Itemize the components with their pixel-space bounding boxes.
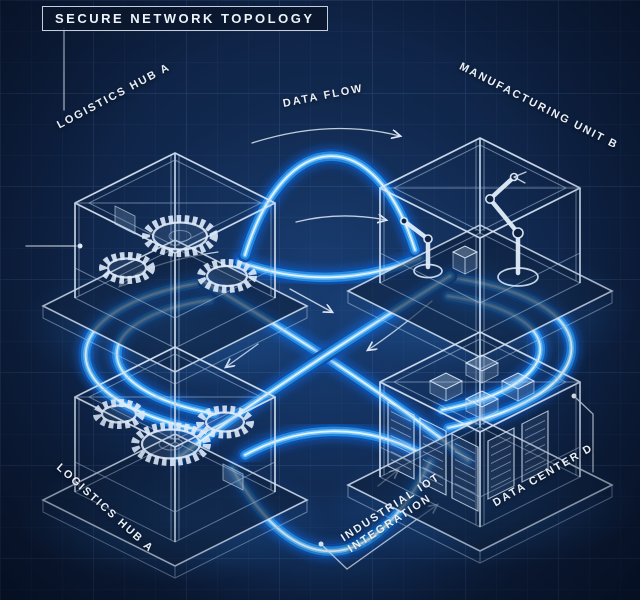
left-marker-dot — [78, 244, 83, 249]
page-title: SECURE NETWORK TOPOLOGY — [55, 11, 315, 26]
blueprint-canvas: SECURE NETWORK TOPOLOGY LOGISTICS HUB A … — [0, 0, 640, 600]
title-box: SECURE NETWORK TOPOLOGY — [42, 6, 328, 31]
